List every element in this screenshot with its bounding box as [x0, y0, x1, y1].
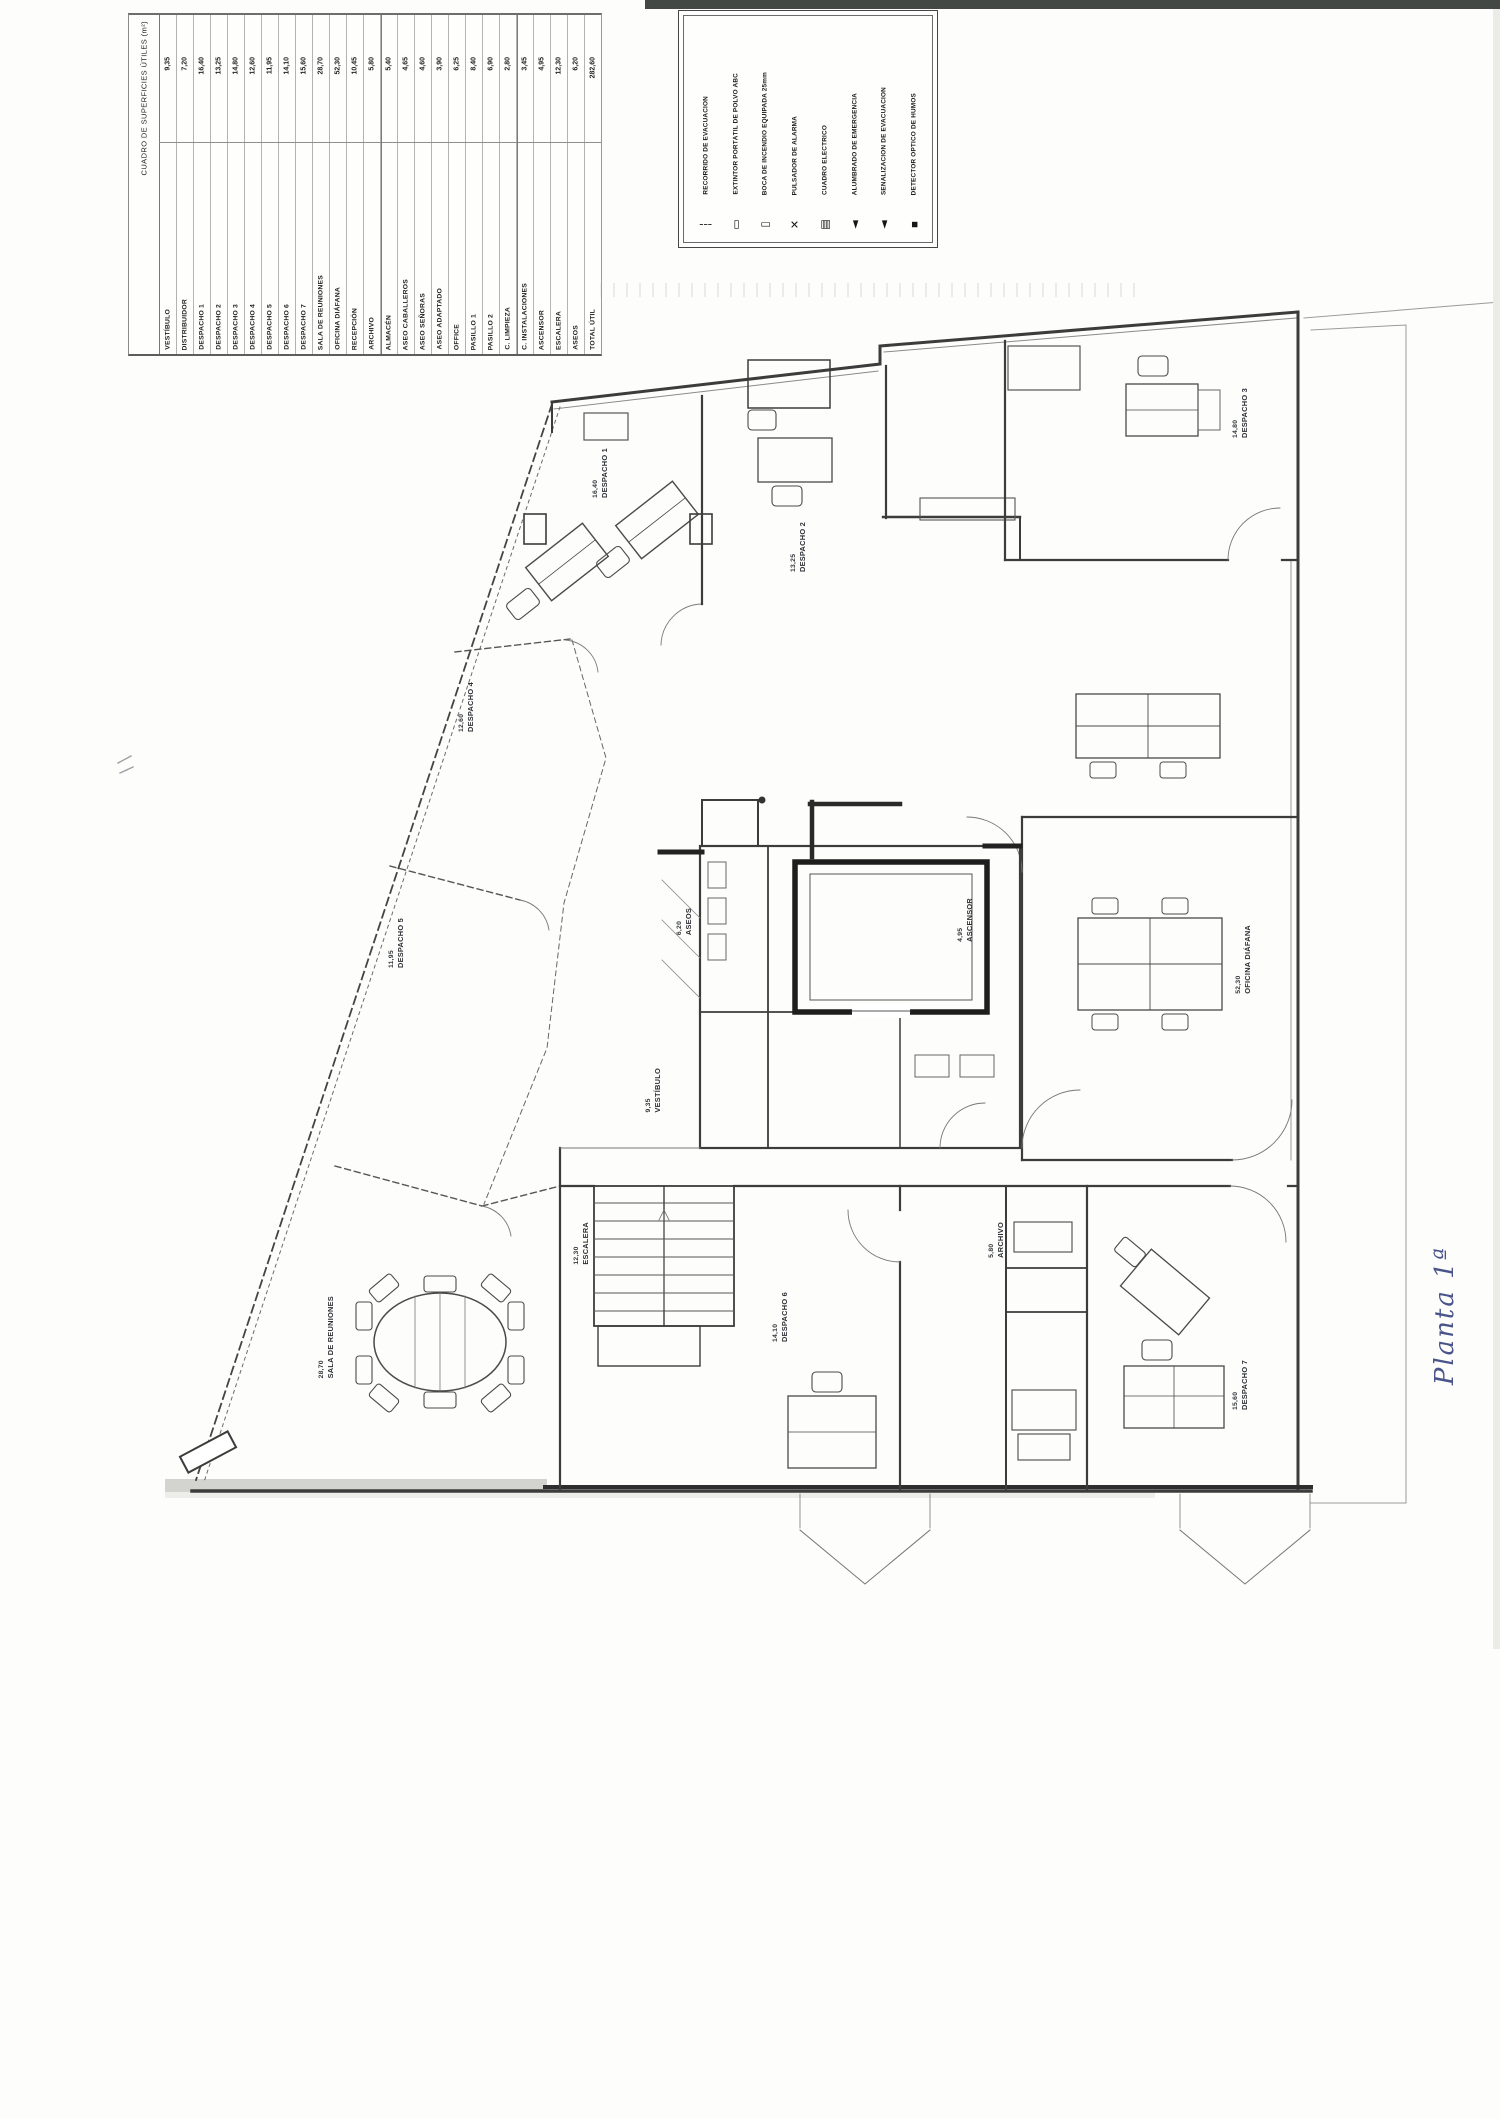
room-label: ASEOS 6,20: [676, 908, 693, 935]
bottom-rooms: [560, 1148, 1298, 1491]
room-label: DESPACHO 2 13,25: [790, 522, 807, 572]
table-row: 13,25 DESPACHO 2: [211, 15, 228, 354]
desk: [505, 481, 698, 621]
room-label: DESPACHO 5 11,95: [388, 918, 405, 968]
table-row: 4,65 ASEO CABALLEROS: [398, 15, 415, 354]
table-row: 14,10 DESPACHO 6: [279, 15, 296, 354]
table-row: 6,20 ASEOS: [568, 15, 585, 354]
table-row: 9,35 VESTÍBULO: [160, 15, 177, 354]
table-row: 12,60 DESPACHO 4: [245, 15, 262, 354]
handwritten-text: Planta 1ª: [1430, 1246, 1460, 1385]
table-area-value: 14,80: [233, 57, 240, 75]
table-row: 10,45 RECEPCIÓN: [347, 15, 364, 354]
table-row: 8,40 PASILLO 1: [466, 15, 483, 354]
table-room-name: ASEO ADAPTADO: [437, 288, 444, 350]
room-name: DESPACHO 1: [600, 448, 609, 498]
table-area-value: 15,60: [301, 57, 308, 75]
room-area: 12,30: [573, 1222, 580, 1265]
room-label: ASCENSOR 4,95: [957, 898, 974, 942]
room-label: ARCHIVO 5,80: [988, 1222, 1005, 1258]
room-name: DESPACHO 6: [780, 1292, 789, 1342]
conference-table: [356, 1273, 524, 1413]
room-area: 6,20: [676, 908, 683, 935]
room-label: DESPACHO 6 14,10: [772, 1292, 789, 1342]
plot-boundary-lines: [1304, 302, 1500, 1503]
bench-desks: [1076, 694, 1220, 778]
table-room-name: DESPACHO 2: [216, 304, 223, 350]
pencil-mark: [118, 756, 133, 773]
table-room-name: DESPACHO 4: [250, 304, 257, 350]
legend-symbol-icon: ✕: [789, 220, 802, 229]
room-label: VESTÍBULO 9,35: [645, 1068, 662, 1113]
table-room-name: DESPACHO 6: [284, 304, 291, 350]
area-table-title: CUADRO DE SUPERFICIES ÚTILES (m²): [140, 21, 149, 175]
table-room-name: ASEOS: [573, 325, 580, 350]
toilet-fixtures: [708, 862, 994, 1077]
table-area-value: 3,45: [522, 57, 529, 71]
room-area: 14,10: [772, 1292, 779, 1342]
table-row: 282,60 TOTAL ÚTIL: [585, 15, 601, 354]
table-room-name: RECEPCIÓN: [352, 308, 359, 350]
legend-symbol-icon: ▤: [818, 219, 831, 229]
table-room-name: PASILLO 1: [471, 314, 478, 350]
table-area-value: 2,80: [505, 57, 512, 71]
door-arc: [482, 604, 702, 1236]
room-label: SALA DE REUNIONES 28,70: [318, 1296, 335, 1378]
bench-desks: [1078, 898, 1222, 1030]
table-room-name: PASILLO 2: [488, 314, 495, 350]
room-name: OFICINA DIÁFANA: [1243, 925, 1252, 994]
room-label: OFICINA DIÁFANA 52,30: [1235, 925, 1252, 994]
table-area-value: 13,25: [216, 57, 223, 75]
entrance-door-swing: [800, 1494, 1310, 1584]
legend-symbol-icon: ┆: [699, 221, 712, 228]
staircase: [594, 1186, 734, 1366]
room-name: ASEOS: [684, 908, 693, 935]
table-row: 4,60 ASEO SEÑORAS: [415, 15, 432, 354]
table-area-value: 12,60: [250, 57, 257, 75]
room-area: 9,35: [645, 1068, 652, 1113]
corner-column: [180, 1431, 236, 1472]
table-room-name: OFICINA DIÁFANA: [335, 287, 342, 350]
legend-label: PULSADOR DE ALARMA: [792, 116, 799, 195]
table-row: 28,70 SALA DE REUNIONES: [313, 15, 330, 354]
table-room-name: TOTAL ÚTIL: [590, 309, 597, 350]
table-row: 6,25 OFFICE: [449, 15, 466, 354]
room-label: DESPACHO 7 15,60: [1232, 1360, 1249, 1410]
desk: [748, 410, 832, 506]
table-area-value: 3,90: [437, 57, 444, 71]
hatch-lines: [662, 880, 700, 998]
table-row: 16,40 DESPACHO 1: [194, 15, 211, 354]
table-row: 4,95 ASCENSOR: [534, 15, 551, 354]
legend-symbol-icon: ◄: [848, 220, 861, 228]
legend-entry: BOCA DE INCENDIO EQUIPADA 25mm ▯: [751, 21, 781, 241]
room-area: 5,80: [988, 1222, 995, 1258]
table-area-value: 6,25: [454, 57, 461, 71]
legend-symbol-icon: ▯: [759, 221, 772, 227]
table-room-name: DESPACHO 3: [233, 304, 240, 350]
table-area-value: 5,40: [386, 57, 393, 71]
table-room-name: DESPACHO 7: [301, 304, 308, 350]
legend-label: RECORRIDO DE EVACUACIÓN: [702, 96, 709, 195]
table-row: 3,45 C. INSTALACIONES: [517, 15, 534, 354]
table-room-name: ASEO SEÑORAS: [420, 293, 427, 350]
room-name: ARCHIVO: [996, 1222, 1005, 1258]
table-row: 14,80 DESPACHO 3: [228, 15, 245, 354]
table-row: 3,90 ASEO ADAPTADO: [432, 15, 449, 354]
table-row: 11,95 DESPACHO 5: [262, 15, 279, 354]
room-name: VESTÍBULO: [653, 1068, 662, 1113]
table-area-value: 16,40: [199, 57, 206, 75]
room-name: DESPACHO 4: [466, 682, 475, 732]
top-right-office: [1005, 341, 1298, 560]
room-name: DESPACHO 3: [1240, 388, 1249, 438]
room-label: ESCALERA 12,30: [573, 1222, 590, 1265]
legend-entry: ALUMBRADO DE EMERGENCIA ◄: [840, 21, 870, 241]
legend-symbol-icon: ◄: [878, 220, 891, 228]
legend-label: BOCA DE INCENDIO EQUIPADA 25mm: [762, 72, 769, 195]
table-room-name: OFFICE: [454, 324, 461, 350]
table-area-value: 4,65: [403, 57, 410, 71]
area-table: CUADRO DE SUPERFICIES ÚTILES (m²) 9,35 V…: [128, 13, 602, 356]
table-row: 7,20 DISTRIBUIDOR: [177, 15, 194, 354]
room-area: 16,40: [592, 448, 599, 498]
table-row: 5,40 ALMACÉN: [381, 15, 398, 354]
legend-entry: RECORRIDO DE EVACUACIÓN ┆: [691, 21, 721, 241]
table-room-name: C. INSTALACIONES: [522, 283, 529, 350]
table-area-value: 4,60: [420, 57, 427, 71]
plan-outer-walls: [192, 312, 1311, 1491]
room-area: 12,60: [458, 682, 465, 732]
table-area-value: 14,10: [284, 57, 291, 75]
table-row: 12,30 ESCALERA: [551, 15, 568, 354]
scan-smudge: [165, 1492, 1155, 1498]
room-label: DESPACHO 3 14,80: [1232, 388, 1249, 438]
scan-edge-strip: [1493, 9, 1500, 1649]
table-room-name: ASCENSOR: [539, 310, 546, 350]
table-area-value: 28,70: [318, 57, 325, 75]
room-area: 15,60: [1232, 1360, 1239, 1410]
table-row: 6,90 PASILLO 2: [483, 15, 500, 354]
legend-entry: SEÑALIZACIÓN DE EVACUACIÓN ◄: [870, 21, 900, 241]
room-name: DESPACHO 5: [396, 918, 405, 968]
handwritten-note: Planta 1ª: [1430, 1246, 1460, 1456]
legend-box: RECORRIDO DE EVACUACIÓN ┆ EXTINTOR PORTÁ…: [678, 10, 938, 248]
legend-label: ALUMBRADO DE EMERGENCIA: [851, 93, 858, 195]
room-area: 52,30: [1235, 925, 1242, 994]
room-name: SALA DE REUNIONES: [326, 1296, 335, 1378]
table-area-value: 12,30: [556, 57, 563, 75]
dashed-boundary: [180, 404, 560, 1482]
table-room-name: VESTÍBULO: [165, 309, 172, 350]
room-label: DESPACHO 1 16,40: [592, 448, 609, 498]
room-area: 13,25: [790, 522, 797, 572]
table-area-value: 6,90: [488, 57, 495, 71]
table-room-name: SALA DE REUNIONES: [318, 275, 325, 350]
room-area: 28,70: [318, 1296, 325, 1378]
table-row: 52,30 OFICINA DIÁFANA: [330, 15, 347, 354]
scan-noise-band: [600, 283, 1140, 297]
table-area-value: 7,20: [182, 57, 189, 71]
table-room-name: ARCHIVO: [369, 317, 376, 350]
legend-symbol-icon: ▪: [908, 221, 921, 228]
legend-entry: CUADRO ELÉCTRICO ▤: [810, 21, 840, 241]
table-room-name: C. LIMPIEZA: [505, 307, 512, 350]
room-name: ASCENSOR: [965, 898, 974, 942]
table-room-name: ASEO CABALLEROS: [403, 279, 410, 350]
table-room-name: DISTRIBUIDOR: [182, 299, 189, 351]
legend-entry: PULSADOR DE ALARMA ✕: [780, 21, 810, 241]
room-name: ESCALERA: [581, 1222, 590, 1265]
table-area-value: 6,20: [573, 57, 580, 71]
legend-label: EXTINTOR PORTÁTIL DE POLVO ABC: [732, 73, 739, 195]
table-area-value: 4,95: [539, 57, 546, 71]
legend-label: CUADRO ELÉCTRICO: [821, 125, 828, 195]
legend-entry: DETECTOR ÓPTICO DE HUMOS ▪: [899, 21, 929, 241]
room-area: 4,95: [957, 898, 964, 942]
table-area-value: 5,80: [369, 57, 376, 71]
legend-symbol-icon: ▭: [729, 219, 742, 229]
area-table-header: CUADRO DE SUPERFICIES ÚTILES (m²): [129, 15, 160, 354]
table-area-value: 9,35: [165, 57, 172, 71]
table-area-value: 10,45: [352, 57, 359, 75]
scan-edge-strip: [645, 0, 1500, 9]
table-room-name: DESPACHO 1: [199, 304, 206, 350]
legend-label: DETECTOR ÓPTICO DE HUMOS: [911, 93, 918, 195]
legend-entry: EXTINTOR PORTÁTIL DE POLVO ABC ▭: [721, 21, 751, 241]
room-area: 14,80: [1232, 388, 1239, 438]
area-table-columns: 9,35 VESTÍBULO 7,20 DISTRIBUIDOR 16,40 D…: [160, 15, 601, 354]
room-name: DESPACHO 7: [1240, 1360, 1249, 1410]
room-area: 11,95: [388, 918, 395, 968]
room-name: DESPACHO 2: [798, 522, 807, 572]
table-area-value: 282,60: [590, 57, 597, 78]
table-row: 15,60 DESPACHO 7: [296, 15, 313, 354]
table-room-name: ESCALERA: [556, 311, 563, 350]
legend-label: SEÑALIZACIÓN DE EVACUACIÓN: [881, 87, 888, 195]
table-row: 5,80 ARCHIVO: [364, 15, 381, 354]
room-label: DESPACHO 4 12,60: [458, 682, 475, 732]
table-area-value: 52,30: [335, 57, 342, 75]
table-row: 2,80 C. LIMPIEZA: [500, 15, 517, 354]
table-area-value: 11,95: [267, 57, 274, 74]
table-room-name: ALMACÉN: [386, 315, 393, 350]
table-room-name: DESPACHO 5: [267, 304, 274, 350]
table-area-value: 8,40: [471, 57, 478, 71]
